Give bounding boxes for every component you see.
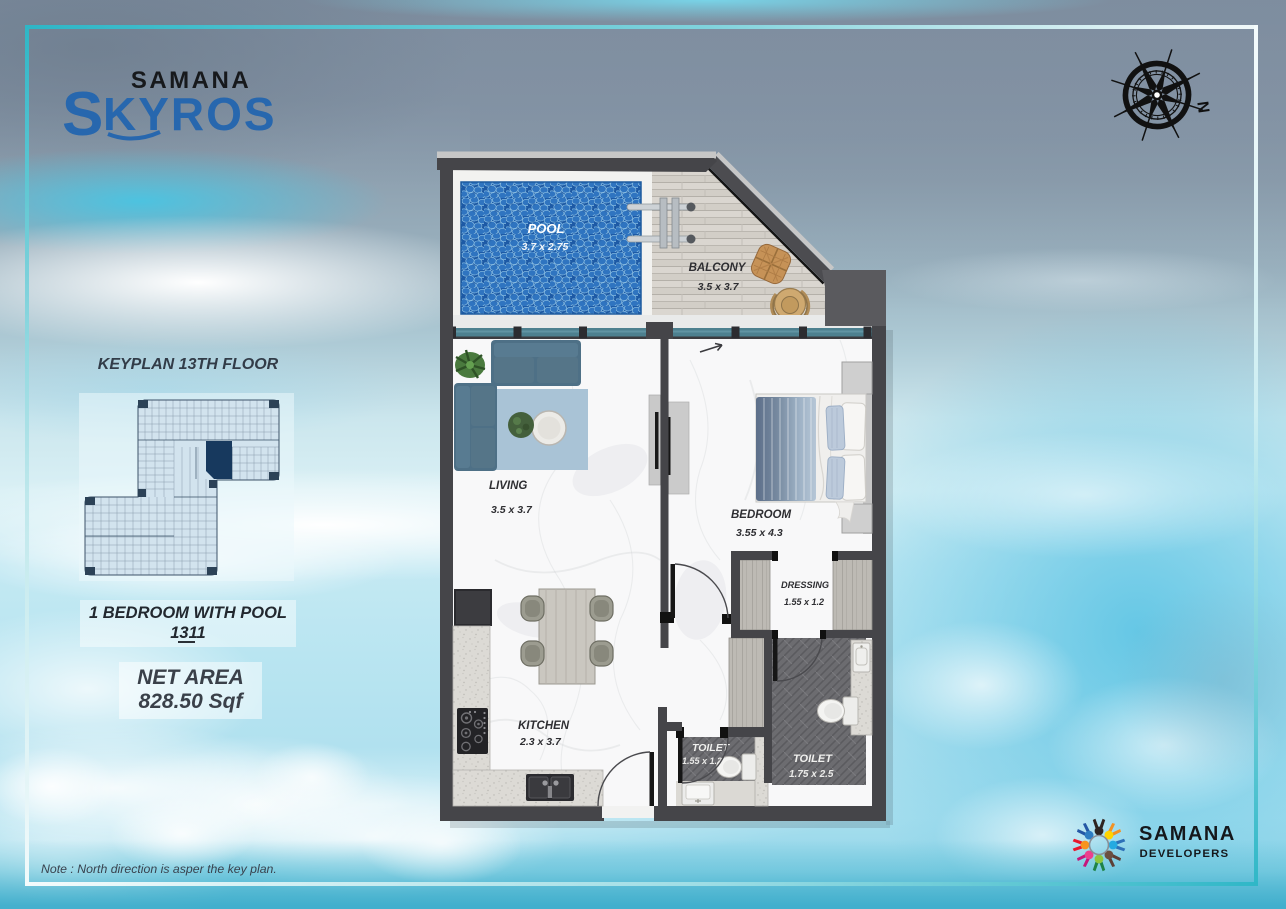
svg-text:BALCONY: BALCONY: [689, 262, 747, 274]
svg-text:POOL: POOL: [528, 221, 565, 236]
svg-text:TOILET: TOILET: [793, 753, 833, 765]
svg-text:3.55 x 4.3: 3.55 x 4.3: [736, 527, 783, 539]
svg-text:KITCHEN: KITCHEN: [518, 720, 570, 732]
svg-text:2.3 x 3.7: 2.3 x 3.7: [519, 736, 562, 748]
svg-text:3.7 x 2.75: 3.7 x 2.75: [522, 241, 569, 253]
svg-text:1.55 x 1.2: 1.55 x 1.2: [784, 597, 824, 607]
svg-text:LIVING: LIVING: [489, 480, 527, 492]
svg-text:1.55 x 1.2: 1.55 x 1.2: [682, 756, 722, 766]
svg-text:3.5 x 3.7: 3.5 x 3.7: [491, 504, 533, 516]
svg-text:DRESSING: DRESSING: [781, 580, 829, 590]
svg-text:BEDROOM: BEDROOM: [731, 509, 791, 521]
svg-text:1.75 x 2.5: 1.75 x 2.5: [789, 769, 834, 780]
svg-text:3.5 x 3.7: 3.5 x 3.7: [698, 281, 740, 293]
